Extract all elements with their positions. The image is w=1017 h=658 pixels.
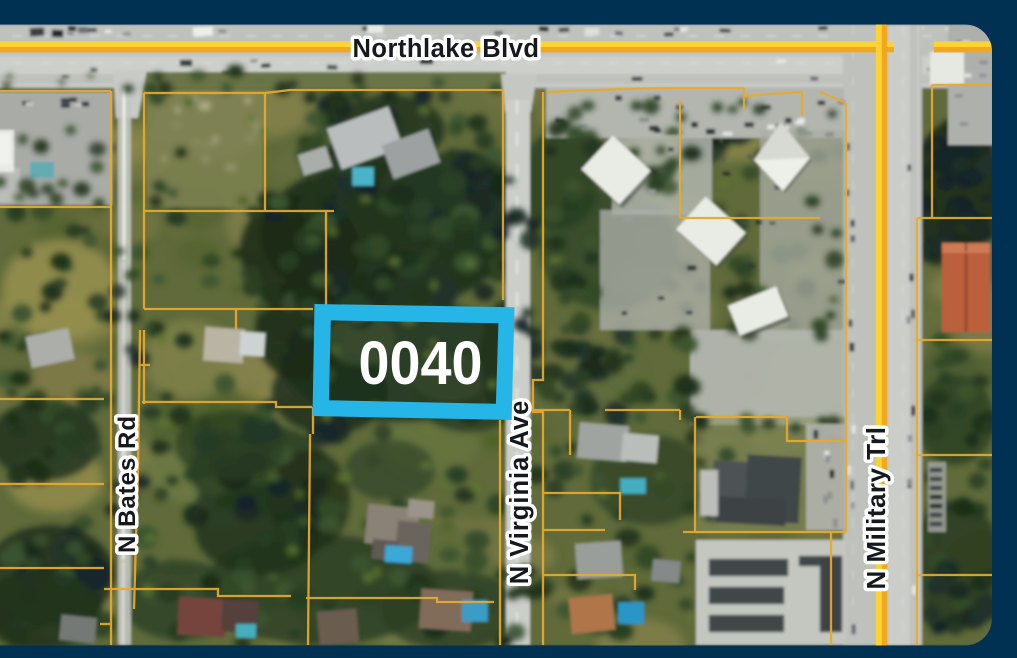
svg-text:N Military Trl: N Military Trl xyxy=(861,426,891,589)
svg-text:N Bates Rd: N Bates Rd xyxy=(114,415,141,553)
svg-text:Northlake Blvd: Northlake Blvd xyxy=(353,35,540,63)
svg-text:0040: 0040 xyxy=(359,329,483,398)
svg-text:N Virginia Ave: N Virginia Ave xyxy=(506,400,534,585)
